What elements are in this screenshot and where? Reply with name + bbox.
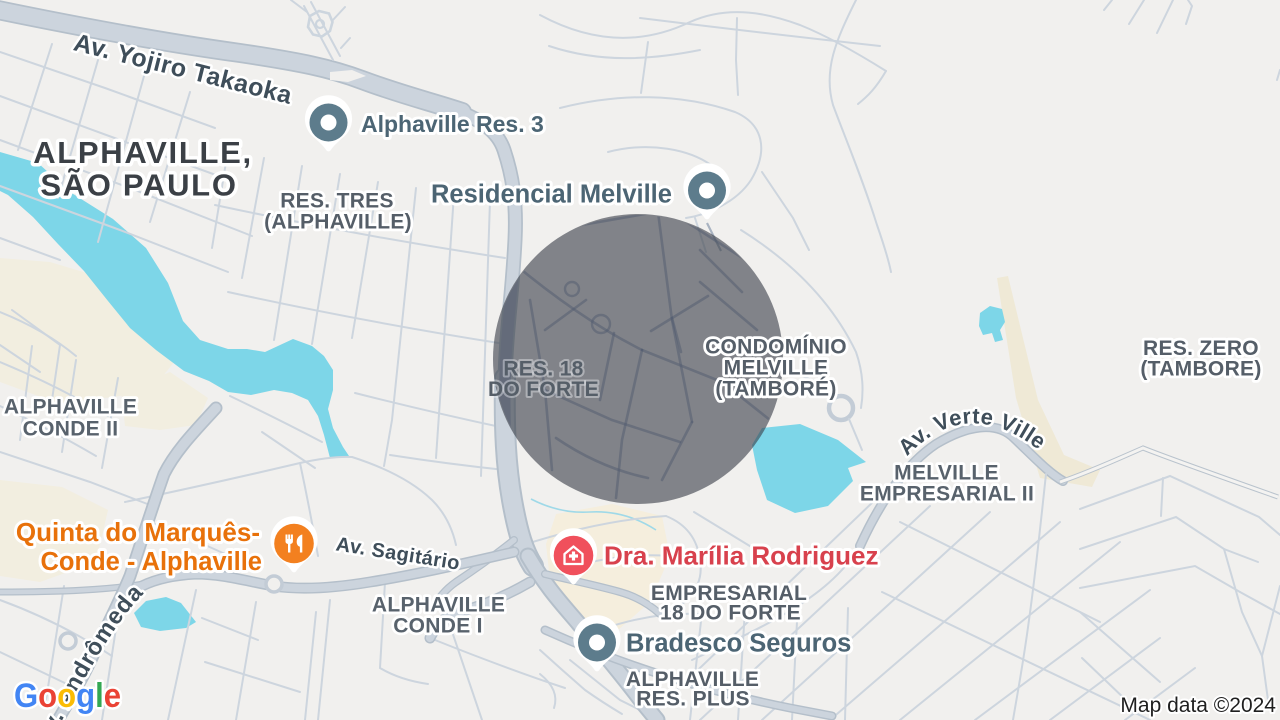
svg-text:(TAMBORE): (TAMBORE) xyxy=(1140,358,1261,381)
svg-text:MELVILLE: MELVILLE xyxy=(894,462,999,485)
svg-text:CONDE I: CONDE I xyxy=(393,615,483,638)
svg-text:CONDOMÍNIO: CONDOMÍNIO xyxy=(705,336,847,359)
svg-text:MELVILLE: MELVILLE xyxy=(724,357,829,380)
svg-text:DO FORTE: DO FORTE xyxy=(488,378,599,401)
svg-text:(ALPHAVILLE): (ALPHAVILLE) xyxy=(264,211,412,234)
svg-text:Alphaville Res. 3: Alphaville Res. 3 xyxy=(361,111,544,137)
svg-text:Quinta do Marquês-: Quinta do Marquês- xyxy=(16,517,260,547)
svg-text:Google: Google xyxy=(14,677,121,715)
svg-text:Bradesco Seguros: Bradesco Seguros xyxy=(626,630,851,658)
svg-text:Residencial Melville: Residencial Melville xyxy=(431,181,672,209)
svg-text:Conde - Alphaville: Conde - Alphaville xyxy=(41,548,263,576)
svg-text:ALPHAVILLE: ALPHAVILLE xyxy=(372,594,505,617)
svg-text:SÃO PAULO: SÃO PAULO xyxy=(40,168,237,203)
svg-text:CONDE II: CONDE II xyxy=(23,418,119,441)
svg-text:ALPHAVILLE: ALPHAVILLE xyxy=(4,396,137,419)
svg-text:Map data ©2024: Map data ©2024 xyxy=(1120,694,1276,717)
svg-text:RES. TRES: RES. TRES xyxy=(280,190,394,213)
svg-text:18 DO FORTE: 18 DO FORTE xyxy=(660,602,801,625)
svg-text:RES. PLUS: RES. PLUS xyxy=(636,688,750,711)
svg-text:(TAMBORÉ): (TAMBORÉ) xyxy=(715,378,836,401)
svg-text:Dra. Marília Rodriguez: Dra. Marília Rodriguez xyxy=(604,541,879,571)
svg-text:ALPHAVILLE,: ALPHAVILLE, xyxy=(33,135,253,170)
svg-text:EMPRESARIAL II: EMPRESARIAL II xyxy=(860,483,1034,506)
